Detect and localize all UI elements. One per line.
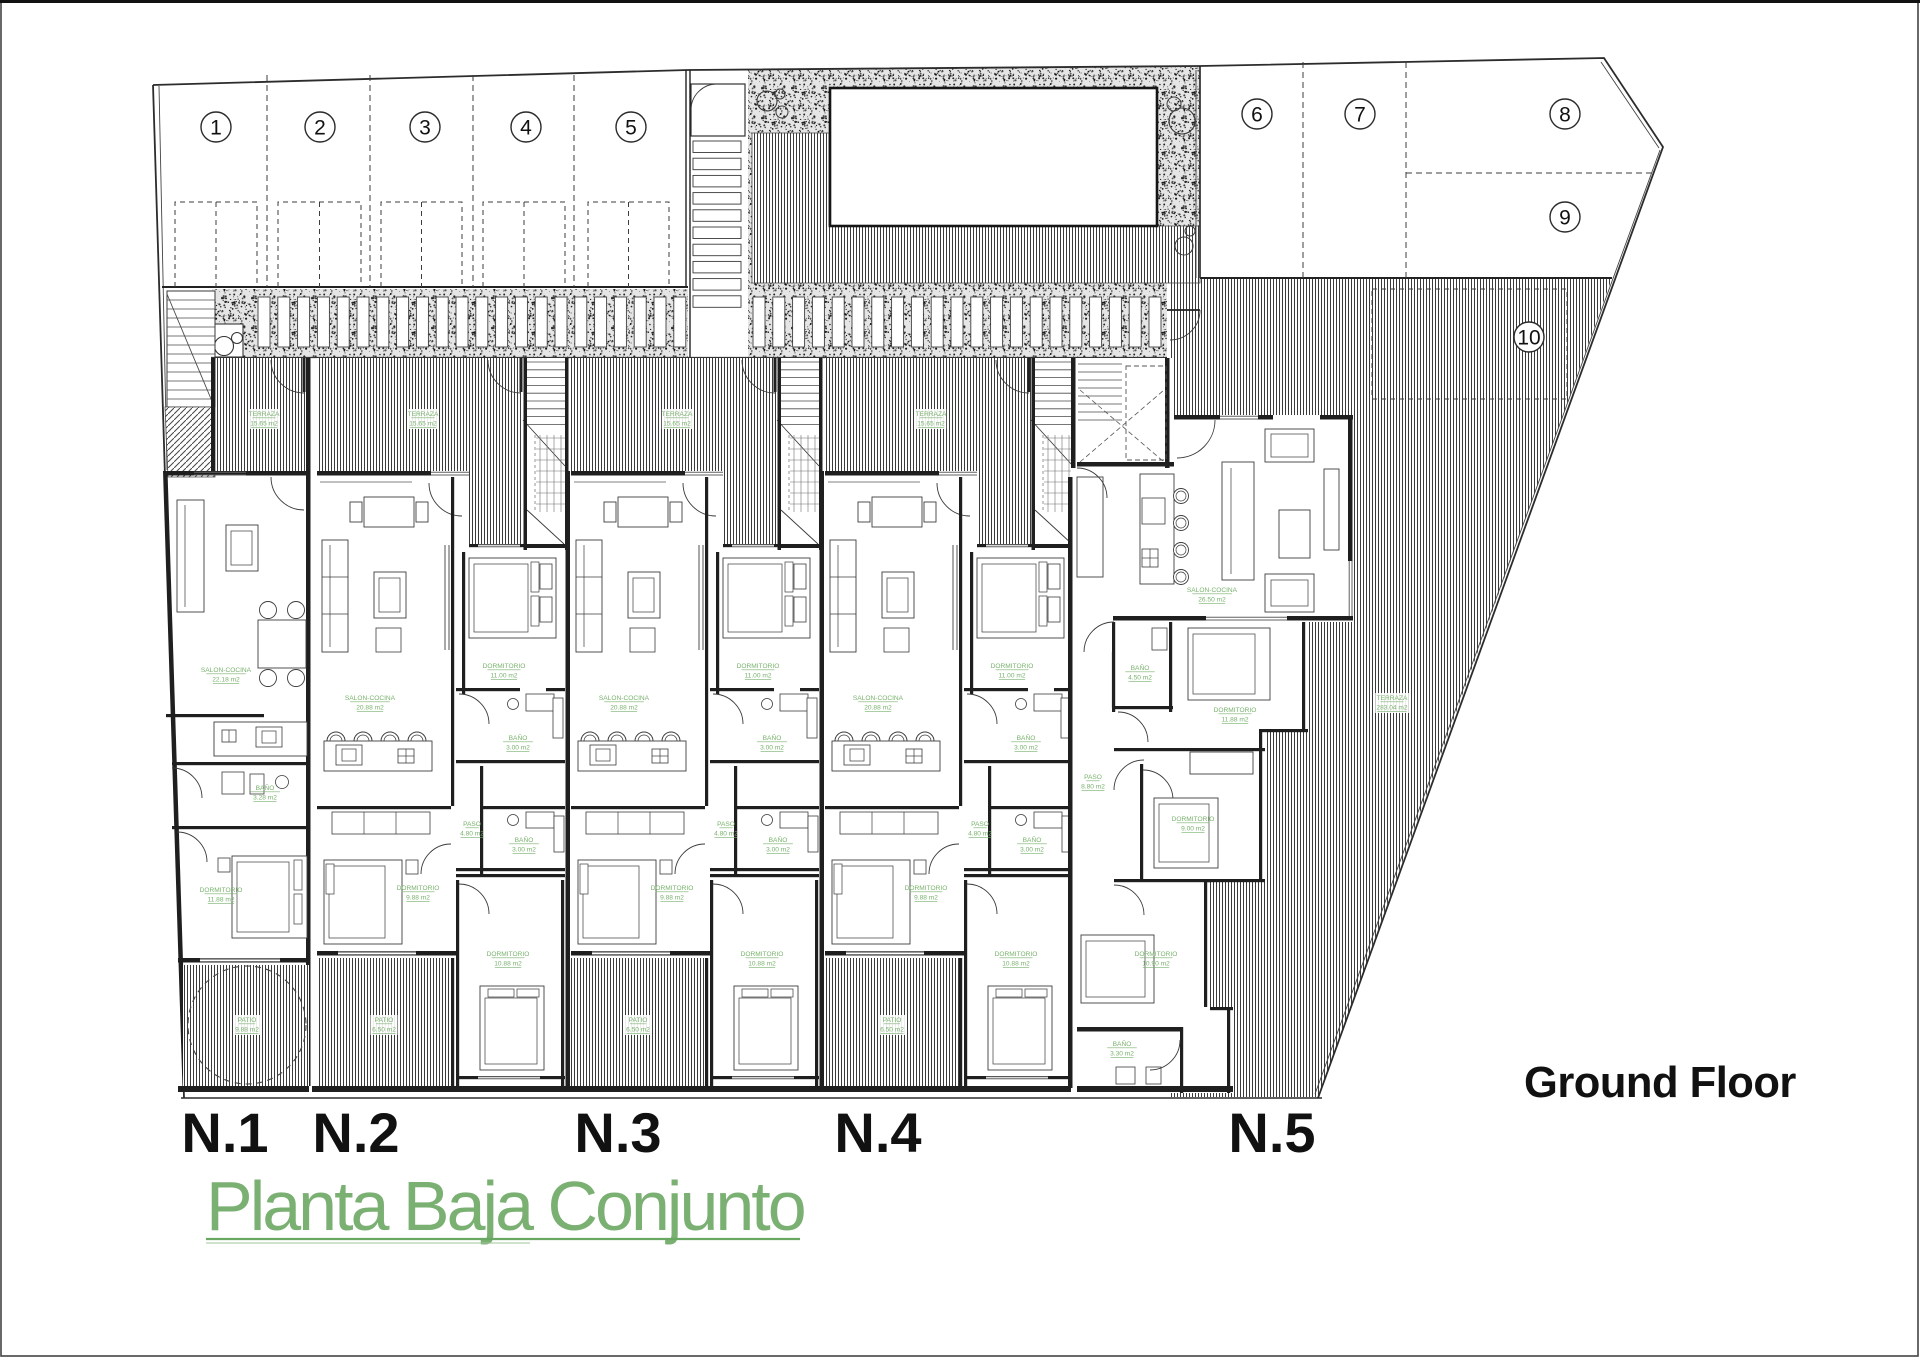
svg-text:PATIO: PATIO: [883, 1017, 902, 1024]
svg-text:TERRAZA: TERRAZA: [916, 411, 947, 418]
svg-text:DORMITORIO: DORMITORIO: [651, 885, 694, 892]
svg-text:SALON-COCINA: SALON-COCINA: [853, 695, 904, 702]
svg-text:8.80 m2: 8.80 m2: [1081, 784, 1105, 791]
svg-text:TERRAZA: TERRAZA: [662, 411, 693, 418]
svg-text:15.65 m2: 15.65 m2: [917, 421, 945, 428]
svg-text:DORMITORIO: DORMITORIO: [737, 663, 780, 670]
svg-text:9: 9: [1559, 207, 1571, 230]
svg-text:8: 8: [1559, 104, 1571, 127]
svg-text:11.00 m2: 11.00 m2: [744, 673, 771, 680]
svg-text:9.88 m2: 9.88 m2: [235, 1027, 259, 1034]
svg-text:6: 6: [1251, 104, 1263, 127]
svg-text:4.80 m2: 4.80 m2: [968, 831, 992, 838]
svg-text:BAÑO: BAÑO: [763, 733, 782, 742]
svg-text:PATIO: PATIO: [629, 1017, 648, 1024]
svg-text:3.00 m2: 3.00 m2: [760, 745, 784, 752]
svg-text:3: 3: [419, 117, 431, 140]
svg-text:4: 4: [520, 117, 532, 140]
svg-text:6.50 m2: 6.50 m2: [372, 1027, 396, 1034]
svg-text:SALON-COCINA: SALON-COCINA: [599, 695, 650, 702]
svg-text:9.88 m2: 9.88 m2: [406, 895, 430, 902]
svg-text:10.88 m2: 10.88 m2: [1002, 961, 1030, 968]
svg-text:SALON-COCINA: SALON-COCINA: [345, 695, 396, 702]
svg-text:26.50 m2: 26.50 m2: [1198, 597, 1226, 604]
svg-text:DORMITORIO: DORMITORIO: [991, 663, 1034, 670]
svg-text:10.88 m2: 10.88 m2: [748, 961, 776, 968]
svg-text:Ground Floor: Ground Floor: [1524, 1059, 1796, 1107]
svg-text:11.00 m2: 11.00 m2: [998, 673, 1025, 680]
svg-text:BAÑO: BAÑO: [515, 835, 534, 844]
svg-text:4.80 m2: 4.80 m2: [714, 831, 738, 838]
svg-text:SALON-COCINA: SALON-COCINA: [201, 667, 252, 674]
svg-text:9.00 m2: 9.00 m2: [1181, 826, 1205, 833]
svg-text:N.3: N.3: [574, 1101, 661, 1164]
svg-text:6.50 m2: 6.50 m2: [880, 1027, 904, 1034]
svg-text:SALON-COCINA: SALON-COCINA: [1187, 587, 1238, 594]
svg-text:11.88 m2: 11.88 m2: [1221, 717, 1248, 724]
svg-text:BAÑO: BAÑO: [769, 835, 788, 844]
svg-text:DORMITORIO: DORMITORIO: [741, 951, 784, 958]
svg-text:6.50 m2: 6.50 m2: [626, 1027, 650, 1034]
svg-text:DORMITORIO: DORMITORIO: [200, 887, 243, 894]
svg-text:PASO: PASO: [971, 821, 989, 828]
svg-text:20.88 m2: 20.88 m2: [864, 705, 892, 712]
svg-text:283.04 m2: 283.04 m2: [1376, 705, 1407, 712]
svg-text:22.18 m2: 22.18 m2: [212, 677, 240, 684]
svg-text:DORMITORIO: DORMITORIO: [1135, 951, 1178, 958]
svg-text:3.00 m2: 3.00 m2: [512, 847, 536, 854]
svg-text:3.00 m2: 3.00 m2: [1014, 745, 1038, 752]
svg-text:DORMITORIO: DORMITORIO: [487, 951, 530, 958]
svg-text:N.1: N.1: [181, 1101, 268, 1164]
svg-text:TERRAZA: TERRAZA: [408, 411, 439, 418]
svg-text:TERRAZA: TERRAZA: [249, 411, 280, 418]
svg-text:BAÑO: BAÑO: [256, 783, 275, 792]
svg-text:PASO: PASO: [1084, 774, 1102, 781]
svg-text:DORMITORIO: DORMITORIO: [1172, 816, 1215, 823]
svg-text:3.00 m2: 3.00 m2: [1020, 847, 1044, 854]
svg-text:15.65 m2: 15.65 m2: [250, 421, 278, 428]
svg-text:Planta Baja Conjunto: Planta Baja Conjunto: [206, 1167, 804, 1245]
svg-text:BAÑO: BAÑO: [1113, 1039, 1132, 1048]
svg-text:3.30 m2: 3.30 m2: [1110, 1051, 1134, 1058]
svg-text:4.50 m2: 4.50 m2: [1128, 675, 1152, 682]
svg-text:DORMITORIO: DORMITORIO: [905, 885, 948, 892]
svg-text:15.65 m2: 15.65 m2: [663, 421, 691, 428]
svg-text:20.88 m2: 20.88 m2: [610, 705, 638, 712]
svg-text:DORMITORIO: DORMITORIO: [995, 951, 1038, 958]
svg-text:DORMITORIO: DORMITORIO: [397, 885, 440, 892]
svg-text:N.5: N.5: [1228, 1101, 1315, 1164]
svg-text:N.4: N.4: [834, 1101, 921, 1164]
svg-text:20.88 m2: 20.88 m2: [356, 705, 384, 712]
svg-text:7: 7: [1354, 104, 1366, 127]
svg-text:3.00 m2: 3.00 m2: [766, 847, 790, 854]
svg-text:2: 2: [314, 117, 326, 140]
svg-text:11.88 m2: 11.88 m2: [207, 897, 234, 904]
svg-text:BAÑO: BAÑO: [1023, 835, 1042, 844]
svg-text:TERRAZA: TERRAZA: [1377, 695, 1408, 702]
svg-text:PASO: PASO: [717, 821, 735, 828]
svg-text:BAÑO: BAÑO: [1017, 733, 1036, 742]
svg-text:10: 10: [1517, 327, 1540, 350]
svg-text:DORMITORIO: DORMITORIO: [1214, 707, 1257, 714]
svg-text:9.88 m2: 9.88 m2: [914, 895, 938, 902]
svg-text:15.65 m2: 15.65 m2: [409, 421, 437, 428]
svg-text:PASO: PASO: [463, 821, 481, 828]
svg-text:BAÑO: BAÑO: [1131, 663, 1150, 672]
svg-text:PATIO: PATIO: [375, 1017, 394, 1024]
svg-text:N.2: N.2: [312, 1101, 399, 1164]
svg-text:10.88 m2: 10.88 m2: [494, 961, 522, 968]
svg-text:3.00 m2: 3.00 m2: [506, 745, 530, 752]
svg-text:1: 1: [210, 117, 222, 140]
svg-text:5: 5: [625, 117, 637, 140]
svg-text:PATIO: PATIO: [238, 1017, 257, 1024]
svg-text:9.88 m2: 9.88 m2: [660, 895, 684, 902]
svg-text:DORMITORIO: DORMITORIO: [483, 663, 526, 670]
svg-text:11.00 m2: 11.00 m2: [490, 673, 517, 680]
svg-text:4.80 m2: 4.80 m2: [460, 831, 484, 838]
svg-text:10.90 m2: 10.90 m2: [1142, 961, 1170, 968]
svg-text:BAÑO: BAÑO: [509, 733, 528, 742]
svg-text:3.28 m2: 3.28 m2: [253, 795, 277, 802]
